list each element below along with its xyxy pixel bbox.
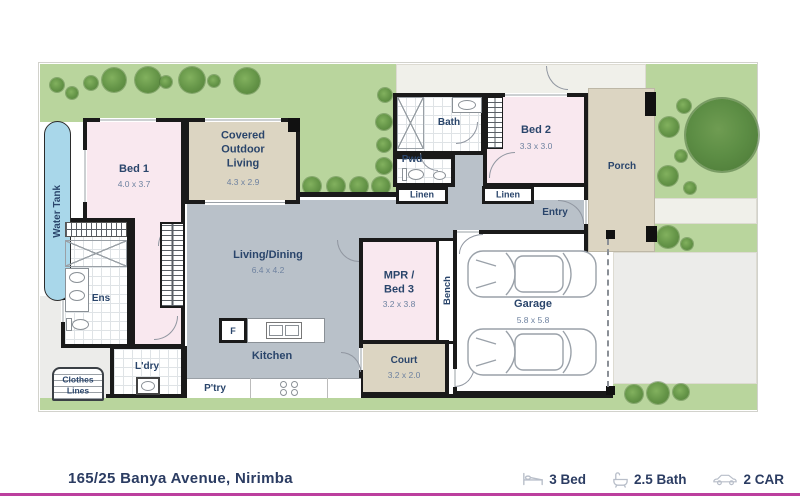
toilet (408, 169, 424, 180)
property-stats: 3 Bed 2.5 Bath 2 CAR (522, 471, 784, 488)
side-path (646, 198, 757, 224)
bush-icon (160, 76, 172, 88)
cabinet-divider (327, 378, 328, 398)
bush-icon (50, 78, 64, 92)
bush-icon (208, 75, 220, 87)
sliding-door (205, 200, 285, 205)
tree-icon (686, 99, 758, 171)
shower (65, 240, 127, 267)
car-top-view (466, 248, 598, 300)
dims-court: 3.2 x 2.0 (388, 370, 421, 380)
label-mpr-bed3: MPR / Bed 3 (375, 269, 423, 297)
post (606, 230, 615, 239)
label-garage: Garage (514, 298, 552, 312)
car-top-view (466, 326, 598, 378)
label-pantry: P'try (204, 383, 226, 396)
bench-label: Bench (442, 276, 453, 305)
cooktop-burner (280, 389, 287, 396)
post (646, 226, 657, 242)
bush-icon (684, 182, 696, 194)
robe-ensuite (65, 222, 127, 237)
window (205, 118, 281, 122)
bush-icon (673, 384, 689, 400)
bush-icon (234, 68, 260, 94)
bed-icon (522, 472, 544, 487)
address-text: 165/25 Banya Avenue, Nirimba (68, 470, 293, 487)
floorplan-canvas: Bench Water Tank Clothes Lines (0, 0, 800, 498)
label-living-dining: Living/Dining (233, 249, 303, 263)
stat-bath-label: 2.5 Bath (634, 472, 687, 487)
label-bed2: Bed 2 (521, 124, 551, 138)
bush-icon (681, 238, 693, 250)
lawn-strip-bottom (40, 398, 613, 410)
room-court (359, 340, 449, 396)
bush-icon (66, 87, 78, 99)
stat-bed-label: 3 Bed (549, 472, 586, 487)
dims-garage: 5.8 x 5.8 (517, 315, 550, 325)
basin (458, 100, 476, 110)
label-court: Court (391, 355, 418, 368)
cooktop-burner (280, 381, 287, 388)
robe-bed2 (487, 97, 503, 149)
bush-icon (657, 226, 679, 248)
bush-icon (102, 68, 126, 92)
window (83, 150, 87, 202)
dims-covered-outdoor-living: 4.3 x 2.9 (227, 177, 260, 187)
label-linen-right: Linen (496, 189, 520, 200)
label-bed1: Bed 1 (119, 163, 149, 177)
bush-icon (376, 158, 392, 174)
door-gap (457, 230, 479, 234)
stat-car: 2 CAR (712, 472, 784, 487)
basin (69, 290, 85, 301)
bush-icon (677, 99, 691, 113)
window (100, 118, 156, 122)
label-laundry: L'dry (135, 361, 159, 374)
basin (141, 381, 155, 391)
label-ensuite: Ens (92, 293, 110, 306)
car-icon (712, 473, 738, 486)
driveway (613, 252, 757, 384)
bush-icon (378, 88, 392, 102)
post (606, 386, 615, 395)
post (288, 118, 300, 132)
bush-icon (659, 117, 679, 137)
post (645, 92, 656, 116)
basin (433, 171, 446, 180)
bath-icon (612, 471, 629, 488)
label-entry: Entry (542, 207, 568, 220)
basin (69, 272, 85, 283)
bush-icon (376, 114, 392, 130)
stat-bed: 3 Bed (522, 472, 586, 487)
label-kitchen: Kitchen (252, 350, 292, 364)
sink-bowl (285, 325, 299, 336)
bush-icon (647, 382, 669, 404)
cabinet-divider (250, 378, 251, 398)
robe-bed1 (160, 222, 185, 308)
label-powder: Pwd (402, 154, 423, 167)
door-gap (584, 200, 588, 224)
dims-mpr-bed3: 3.2 x 3.8 (383, 299, 416, 309)
cooktop-burner (291, 389, 298, 396)
shower (397, 97, 424, 149)
fridge: F (219, 318, 247, 343)
bush-icon (377, 138, 391, 152)
toilet-tank (402, 168, 407, 181)
water-tank-label: Water Tank (52, 185, 63, 238)
label-linen-left: Linen (410, 189, 434, 200)
label-porch: Porch (608, 161, 636, 174)
dims-bed1: 4.0 x 3.7 (118, 179, 151, 189)
bush-icon (135, 67, 161, 93)
wall (298, 192, 398, 197)
fridge-label: F (230, 326, 236, 336)
bush-icon (179, 67, 205, 93)
sink-bowl (269, 325, 283, 336)
window (505, 93, 567, 97)
accent-rule (0, 493, 800, 496)
bush-icon (84, 76, 98, 90)
toilet (72, 319, 89, 330)
stat-bath: 2.5 Bath (612, 471, 687, 488)
bush-icon (675, 150, 687, 162)
garage-door-dashed (607, 239, 611, 387)
label-bath: Bath (438, 117, 460, 130)
clothes-lines-label: Clothes Lines (55, 374, 101, 395)
dims-bed2: 3.3 x 3.0 (520, 141, 553, 151)
bush-icon (625, 385, 643, 403)
label-covered-outdoor-living: Covered Outdoor Living (212, 129, 274, 170)
bush-icon (658, 166, 678, 186)
cooktop-burner (291, 381, 298, 388)
stat-car-label: 2 CAR (743, 472, 784, 487)
dims-living-dining: 6.4 x 4.2 (252, 265, 285, 275)
